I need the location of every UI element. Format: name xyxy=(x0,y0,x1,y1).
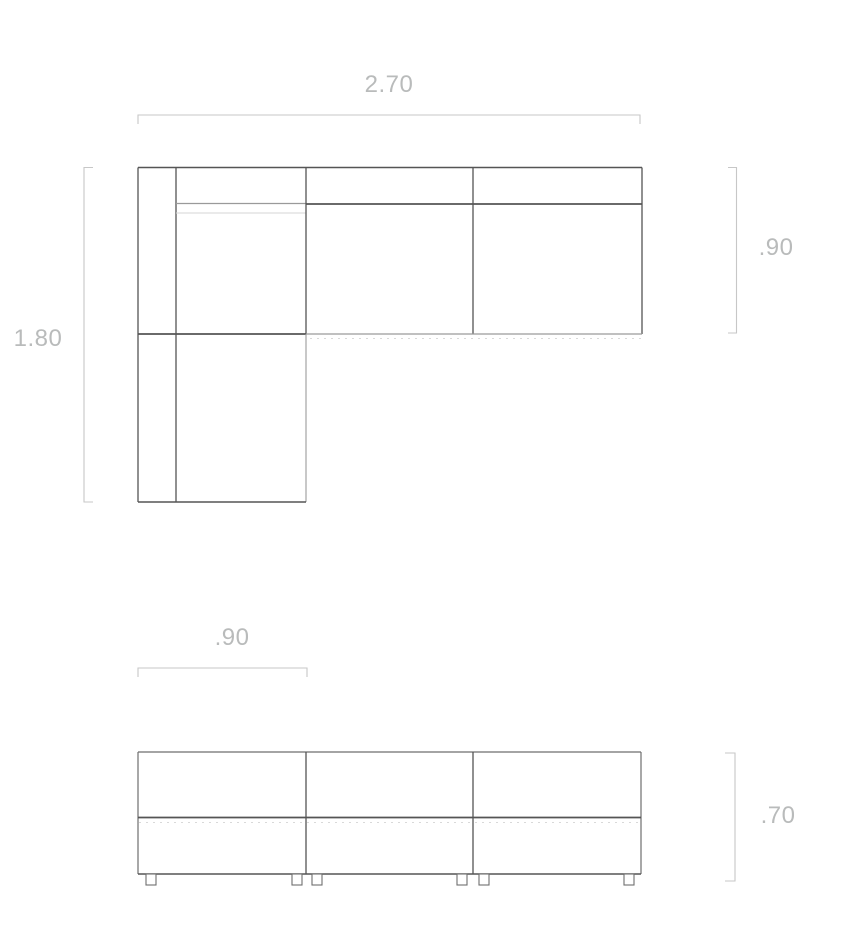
sofa-leg xyxy=(146,874,156,885)
elevation-height-dimension-bracket xyxy=(725,753,735,881)
plan-depth-dimension-bracket xyxy=(84,168,93,503)
sofa-leg xyxy=(624,874,634,885)
elevation-module-width-dimension-bracket xyxy=(138,668,307,677)
sofa-leg xyxy=(479,874,489,885)
plan-width-dimension-label: 2.70 xyxy=(365,71,414,99)
sofa-leg xyxy=(292,874,302,885)
sofa-leg xyxy=(312,874,322,885)
elevation-dimension-brackets xyxy=(138,668,735,881)
elevation-module-width-dimension-label: .90 xyxy=(215,624,250,652)
line-drawing xyxy=(0,0,845,949)
plan-view xyxy=(138,168,642,503)
plan-sofa-depth-dimension-bracket xyxy=(728,168,737,334)
sofa-leg xyxy=(457,874,467,885)
sofa-dimension-drawing: 2.70 1.80 .90 .90 .70 xyxy=(0,0,845,949)
plan-width-dimension-bracket xyxy=(138,115,640,124)
plan-sofa-depth-dimension-label: .90 xyxy=(759,234,794,262)
elevation-view xyxy=(138,752,641,885)
plan-dimension-brackets xyxy=(84,115,737,502)
plan-depth-dimension-label: 1.80 xyxy=(14,325,63,353)
elevation-height-dimension-label: .70 xyxy=(761,802,796,830)
